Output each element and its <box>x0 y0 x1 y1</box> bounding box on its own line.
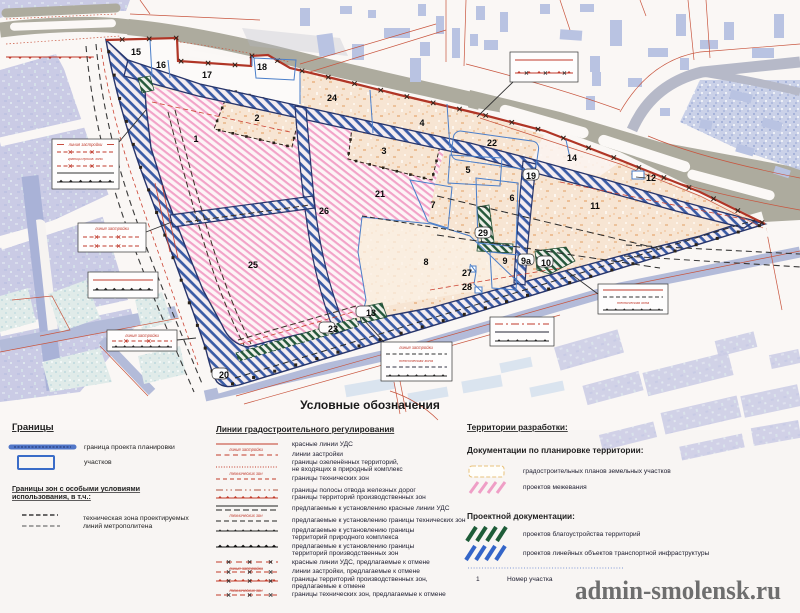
svg-text:проектов межевания: проектов межевания <box>523 484 587 491</box>
svg-text:25: 25 <box>248 260 258 270</box>
svg-text:границы произв. зоны: границы произв. зоны <box>68 157 104 161</box>
svg-text:техническая зона: техническая зона <box>617 301 649 305</box>
svg-text:3: 3 <box>381 146 386 156</box>
svg-text:9a: 9a <box>521 256 532 266</box>
svg-text:граница проекта планировки: граница проекта планировки <box>84 444 175 451</box>
svg-text:13: 13 <box>366 308 376 318</box>
svg-text:линия застройки: линия застройки <box>398 345 433 350</box>
svg-text:Территории разработки:: Территории разработки: <box>467 422 568 432</box>
svg-text:8: 8 <box>423 257 428 267</box>
svg-text:Номер участка: Номер участка <box>507 576 553 583</box>
svg-text:19: 19 <box>526 171 536 181</box>
svg-text:1: 1 <box>193 134 198 144</box>
svg-text:15: 15 <box>131 47 141 57</box>
svg-text:предлагаемые к отмене: предлагаемые к отмене <box>292 583 366 590</box>
svg-text:9: 9 <box>502 256 507 266</box>
svg-text:23: 23 <box>328 324 338 334</box>
svg-text:1: 1 <box>476 576 480 583</box>
svg-text:границы полосы отвода железных: границы полосы отвода железных дорог <box>292 487 416 494</box>
svg-text:17: 17 <box>202 70 212 80</box>
svg-text:границы технических зон, предл: границы технических зон, предлагаемые к … <box>292 591 446 598</box>
svg-text:градостроительных планов земел: градостроительных планов земельных участ… <box>523 468 671 475</box>
svg-text:6: 6 <box>509 193 514 203</box>
svg-text:линия застройки: линия застройки <box>228 566 263 571</box>
svg-text:линия застройки: линия застройки <box>68 142 103 147</box>
svg-text:линий метрополитена: линий метрополитена <box>83 522 153 530</box>
svg-text:линия застройки: линия застройки <box>228 447 263 452</box>
svg-text:не входящих в природный компле: не входящих в природный комплекс <box>292 465 403 473</box>
svg-text:красные линии УДС, предлагаемы: красные линии УДС, предлагаемые к отмене <box>292 559 430 566</box>
svg-text:техническая зона: техническая зона <box>399 358 434 363</box>
svg-text:проектов линейных объектов тра: проектов линейных объектов транспортной … <box>523 549 710 557</box>
svg-text:технических зон: технических зон <box>230 513 264 518</box>
svg-text:28: 28 <box>462 282 472 292</box>
svg-text:20: 20 <box>219 370 229 380</box>
svg-text:27: 27 <box>462 268 472 278</box>
svg-text:линии застройки: линии застройки <box>292 450 343 458</box>
svg-text:Документации по планировке тер: Документации по планировке территории: <box>467 445 643 455</box>
svg-text:26: 26 <box>319 206 329 216</box>
svg-text:линия застройки: линия застройки <box>94 226 129 231</box>
svg-text:admin-smolensk.ru: admin-smolensk.ru <box>575 576 781 605</box>
svg-text:Условные обозначения: Условные обозначения <box>300 398 440 412</box>
svg-text:технических зон: технических зон <box>230 471 264 476</box>
svg-text:29: 29 <box>478 228 488 238</box>
svg-text:5: 5 <box>465 165 470 175</box>
svg-text:18: 18 <box>257 62 267 72</box>
svg-text:использования, в т.ч.:: использования, в т.ч.: <box>12 492 91 501</box>
svg-text:участков: участков <box>84 459 112 466</box>
svg-text:красные линии УДС: красные линии УДС <box>292 441 353 448</box>
svg-text:линии застройки, предлагаемые: линии застройки, предлагаемые к отмене <box>292 567 420 575</box>
svg-text:техническая зона проектируемых: техническая зона проектируемых <box>83 515 189 522</box>
svg-text:11: 11 <box>590 201 600 211</box>
svg-text:проектов благоустройства терри: проектов благоустройства территорий <box>523 530 641 538</box>
svg-text:Линии градостроительного регул: Линии градостроительного регулирования <box>216 424 394 434</box>
svg-text:предлагаемые к установлению кр: предлагаемые к установлению красные лини… <box>292 505 450 512</box>
svg-text:24: 24 <box>327 93 337 103</box>
svg-text:технических зон: технических зон <box>230 588 264 593</box>
svg-text:линия застройки: линия застройки <box>124 333 159 338</box>
svg-text:границы технических зон: границы технических зон <box>292 475 369 482</box>
svg-text:предлагаемые к установлению гр: предлагаемые к установлению границы техн… <box>292 517 466 524</box>
svg-text:территорий природного комплекс: территорий природного комплекса <box>292 533 399 541</box>
svg-text:22: 22 <box>487 138 497 148</box>
svg-text:территорий производственных зо: территорий производственных зон <box>292 549 399 557</box>
svg-text:границы озеленённых территорий: границы озеленённых территорий, <box>292 458 399 466</box>
svg-text:4: 4 <box>419 118 424 128</box>
svg-text:Границы: Границы <box>12 422 54 433</box>
svg-text:7: 7 <box>430 200 435 210</box>
svg-text:Проектной документации:: Проектной документации: <box>467 511 575 521</box>
svg-text:14: 14 <box>567 153 577 163</box>
svg-text:10: 10 <box>541 258 551 268</box>
svg-text:предлагаемые к установлению гр: предлагаемые к установлению границы <box>292 543 414 550</box>
svg-text:2: 2 <box>254 113 259 123</box>
svg-text:21: 21 <box>375 189 385 199</box>
svg-text:предлагаемые к установлению гр: предлагаемые к установлению границы <box>292 527 414 534</box>
svg-text:границы территорий производств: границы территорий производственных зон <box>292 493 426 501</box>
svg-text:границы территорий производств: границы территорий производственных зон, <box>292 575 428 583</box>
svg-text:16: 16 <box>156 60 166 70</box>
svg-text:12: 12 <box>646 173 656 183</box>
